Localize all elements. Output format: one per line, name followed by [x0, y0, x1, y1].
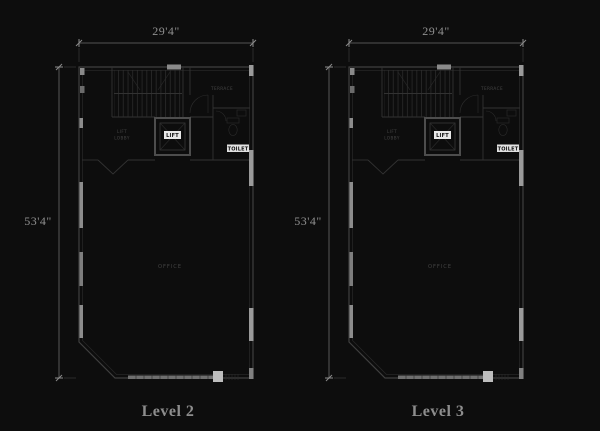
upper-room-label: TERRACE [480, 86, 503, 91]
bottom-column [213, 371, 223, 382]
width-dimension-label: 29'4" [422, 24, 450, 38]
dimension-width: 29'4" [76, 24, 256, 62]
lift-lobby: LIFT LOBBY [352, 129, 483, 174]
staircase [112, 67, 183, 117]
height-dimension-label: 53'4" [294, 214, 322, 228]
lobby-label-line1: LIFT [387, 129, 397, 134]
lift-label: LIFT [436, 133, 449, 139]
floorplan-figure-level-3: 29'4" 53'4" [280, 10, 540, 425]
dimension-height: 53'4" [294, 64, 346, 381]
office-label: OFFICE [158, 264, 182, 270]
level-label: Level 2 [142, 403, 195, 420]
height-dimension-label: 53'4" [24, 214, 52, 228]
left-wall-windows [350, 68, 355, 338]
left-wall-windows [80, 68, 85, 338]
lift-shaft: LIFT [155, 118, 190, 155]
upper-room-label: TERRACE [210, 86, 233, 91]
width-dimension-label: 29'4" [152, 24, 180, 38]
office-label: OFFICE [428, 264, 452, 270]
floorplan-svg-level-2: 29'4" 53'4" [10, 10, 270, 425]
staircase [382, 67, 453, 117]
toilet-label: TOILET [498, 146, 519, 152]
lift-shaft: LIFT [425, 118, 460, 155]
floorplan-svg-level-3: 29'4" 53'4" [280, 10, 540, 425]
lobby-label-line2: LOBBY [384, 136, 400, 141]
dimension-width: 29'4" [346, 24, 526, 62]
floorplan-figure-level-2: 29'4" 53'4" [10, 10, 270, 425]
top-wall-block [437, 65, 451, 70]
top-wall-block [167, 65, 181, 70]
bottom-wall-windows [128, 371, 238, 382]
dimension-height: 53'4" [24, 64, 76, 381]
bottom-wall-windows [398, 371, 508, 382]
lift-lobby: LIFT LOBBY [82, 129, 213, 174]
lift-label: LIFT [166, 133, 179, 139]
upper-room-and-toilet: TERRACE TOILET [460, 67, 520, 160]
toilet-label: TOILET [228, 146, 249, 152]
lobby-label-line2: LOBBY [114, 136, 130, 141]
bottom-column [483, 371, 493, 382]
upper-room-and-toilet: TERRACE TOILET [190, 67, 250, 160]
level-label: Level 3 [412, 403, 465, 420]
lobby-label-line1: LIFT [117, 129, 127, 134]
